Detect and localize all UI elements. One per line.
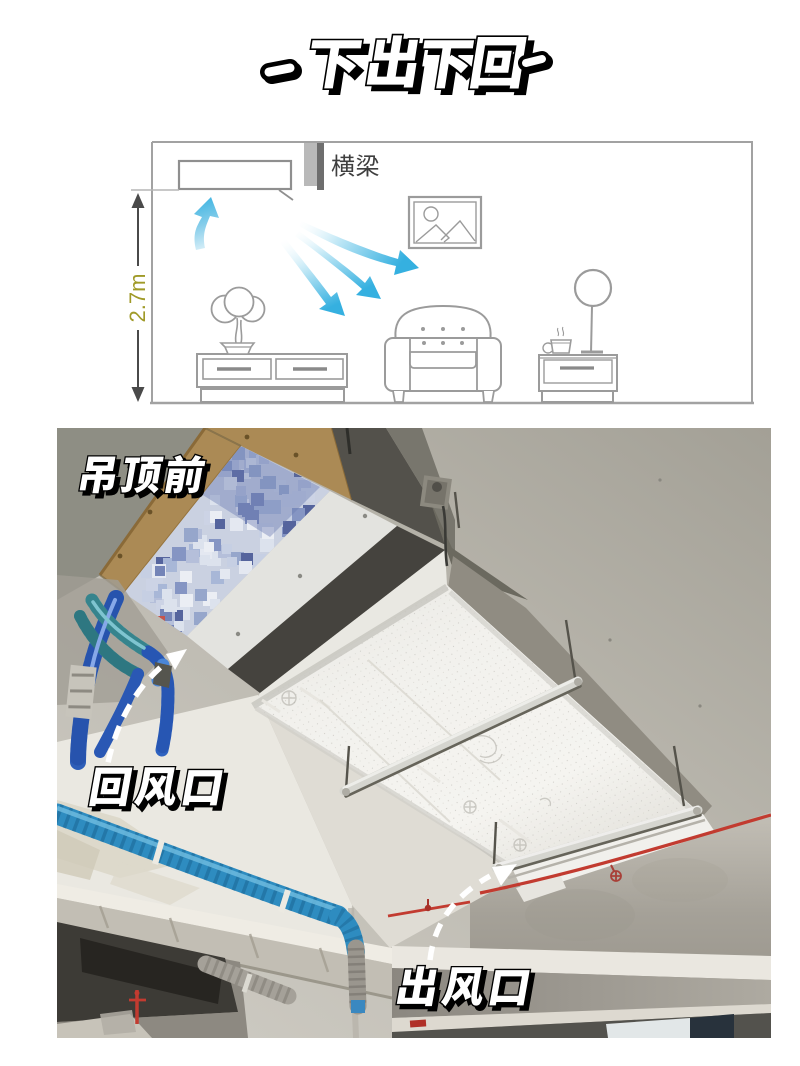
svg-text:2.7m: 2.7m	[125, 274, 150, 323]
